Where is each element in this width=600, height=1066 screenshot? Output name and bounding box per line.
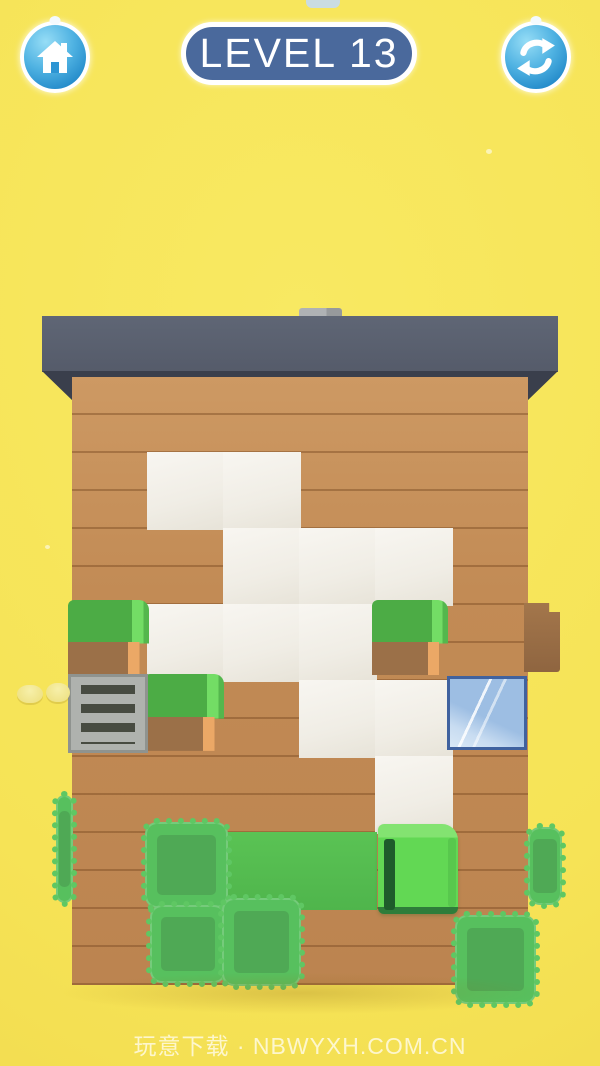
house-shadow: [58, 972, 546, 1014]
home-icon: [35, 37, 75, 77]
house-wall[interactable]: [72, 377, 528, 985]
hedge-block: [528, 827, 562, 905]
roof: [42, 316, 558, 372]
wood-block: [524, 603, 560, 672]
hedge-block: [56, 795, 73, 903]
restart-button[interactable]: [501, 21, 571, 93]
refresh-icon: [515, 36, 557, 78]
level-label: LEVEL 13: [199, 30, 398, 77]
home-button[interactable]: [20, 21, 90, 93]
level-badge: LEVEL 13: [181, 22, 417, 85]
top-notch: [306, 0, 340, 8]
coin: [17, 685, 43, 703]
dust-speck: [45, 545, 50, 549]
dust-speck: [486, 149, 492, 154]
game-screen: LEVEL 13 玩意下载 · NBWYXH.COM.CN: [0, 0, 600, 1066]
watermark-text: 玩意下载 · NBWYXH.COM.CN: [0, 1027, 600, 1061]
coin: [46, 683, 70, 702]
